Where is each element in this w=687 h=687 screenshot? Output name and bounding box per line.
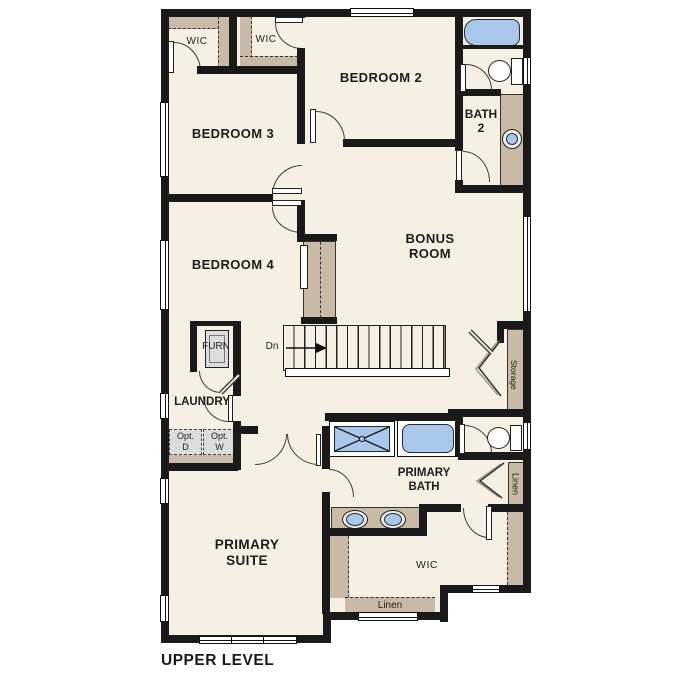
door-leaf <box>310 109 316 143</box>
window <box>199 636 232 644</box>
wall <box>458 452 531 460</box>
sink-basin-icon <box>384 513 402 526</box>
wall <box>322 492 330 614</box>
door-leaf <box>272 200 302 206</box>
bonus-room-label: BONUS ROOM <box>355 231 505 262</box>
bath2-label-line1: BATH <box>456 107 506 121</box>
stairs-dn-label: Dn <box>260 341 284 353</box>
door-leaf <box>275 17 303 23</box>
laundry-label: LAUNDRY <box>127 396 277 410</box>
window <box>358 612 418 621</box>
wall <box>161 9 531 17</box>
exterior-patch <box>331 620 533 645</box>
wall <box>488 504 531 512</box>
window <box>523 57 531 85</box>
bonus-label-line1: BONUS <box>355 231 505 246</box>
opt-d-label: D <box>182 442 189 453</box>
bedroom2-label: BEDROOM 2 <box>306 70 456 85</box>
wic-label: WIC <box>172 36 222 48</box>
bedroom4-label: BEDROOM 4 <box>158 257 308 272</box>
wall <box>301 317 337 324</box>
window <box>472 585 500 593</box>
window <box>231 636 264 644</box>
primary-bath-line2: BATH <box>349 481 499 495</box>
linen-bath-label: Linen <box>510 466 521 502</box>
opt-w-label: W <box>215 442 224 453</box>
window <box>263 636 297 644</box>
closet-rod <box>320 242 321 318</box>
wall <box>301 234 337 241</box>
sink-basin-icon <box>506 133 518 145</box>
primary-suite-line1: PRIMARY <box>172 537 322 553</box>
window <box>350 8 414 17</box>
door-leaf <box>459 424 465 454</box>
wic-shelf <box>330 536 349 598</box>
linen-label: Linen <box>378 600 402 612</box>
wall <box>161 463 238 471</box>
window <box>160 595 169 622</box>
wall <box>455 185 531 193</box>
primary-suite-label: PRIMARY SUITE <box>172 537 322 569</box>
bathtub-icon <box>464 19 520 46</box>
wall <box>329 528 427 536</box>
window <box>160 240 169 310</box>
window <box>160 478 169 504</box>
bonus-label-line2: ROOM <box>355 246 505 261</box>
wall <box>190 321 241 326</box>
page-title: UPPER LEVEL <box>161 652 361 670</box>
window <box>523 216 531 312</box>
toilet-icon <box>488 60 511 82</box>
door-leaf <box>316 434 321 466</box>
wall <box>197 66 301 74</box>
door-leaf <box>272 188 302 194</box>
stair-rail <box>285 368 450 377</box>
primary-bath-label: PRIMARY BATH <box>349 467 499 494</box>
stairs <box>283 325 446 371</box>
door-leaf <box>456 150 462 181</box>
bath2-label-line2: 2 <box>456 121 506 135</box>
window <box>523 422 531 450</box>
wall <box>229 9 237 74</box>
primary-bath-line1: PRIMARY <box>349 467 499 481</box>
wic-label: WIC <box>241 34 291 46</box>
wall <box>233 322 241 396</box>
toilet-tank-icon <box>511 58 523 85</box>
toilet-tank-icon <box>510 425 522 451</box>
floorplan-upper-level: Linen Dn Opt. D Opt. W <box>0 0 687 687</box>
wall <box>325 413 462 421</box>
furnace-label: FURN <box>191 341 241 353</box>
wall <box>343 139 463 147</box>
dryer-optional: Opt. D <box>169 429 202 455</box>
primary-suite-line2: SUITE <box>172 553 322 569</box>
toilet-icon <box>487 427 510 449</box>
storage-label: Storage <box>509 345 519 405</box>
bathtub-icon <box>402 424 454 453</box>
opt-d-label: Opt. <box>177 431 194 442</box>
bath2-label: BATH 2 <box>456 107 506 135</box>
wic-primary-label: WIC <box>352 559 502 571</box>
wall <box>161 194 273 202</box>
wall <box>462 45 524 49</box>
wall <box>497 321 504 343</box>
washer-optional: Opt. W <box>203 429 236 455</box>
shower-pan-icon <box>334 426 390 452</box>
bedroom3-label: BEDROOM 3 <box>158 126 308 141</box>
door-leaf <box>486 506 492 540</box>
opt-w-label: Opt. <box>211 431 228 442</box>
wall <box>322 426 330 469</box>
door-leaf <box>460 64 466 92</box>
sink-basin-icon <box>346 513 364 526</box>
